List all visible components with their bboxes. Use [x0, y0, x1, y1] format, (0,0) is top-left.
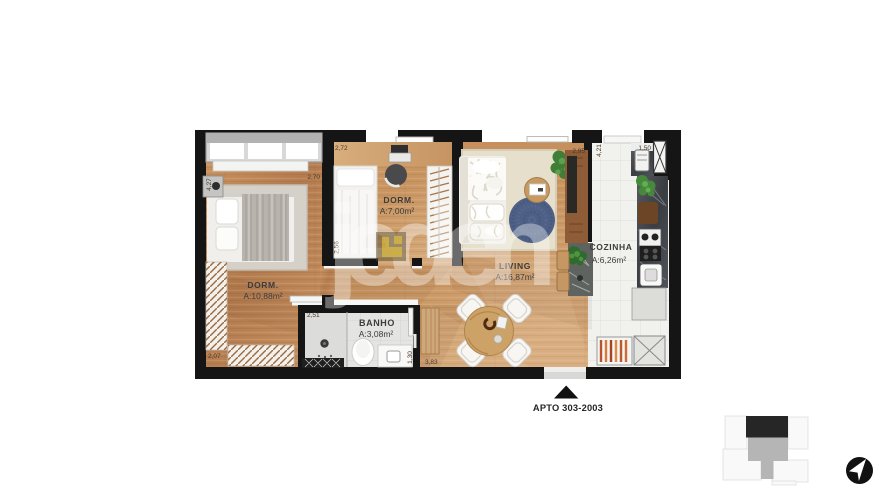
- svg-text:A:6,26m²: A:6,26m²: [592, 255, 627, 265]
- svg-text:4,21: 4,21: [596, 144, 603, 157]
- svg-text:1,30: 1,30: [407, 351, 414, 364]
- svg-text:jeden: jeden: [325, 183, 550, 310]
- svg-text:2,07: 2,07: [208, 353, 221, 360]
- svg-text:BANHO: BANHO: [359, 318, 395, 328]
- svg-text:COZINHA: COZINHA: [590, 242, 633, 252]
- svg-text:A:10,88m²: A:10,88m²: [243, 291, 282, 301]
- svg-text:2,70: 2,70: [307, 174, 320, 181]
- svg-text:A:3,08m²: A:3,08m²: [359, 329, 394, 339]
- svg-text:3,83: 3,83: [425, 359, 438, 366]
- svg-text:2,72: 2,72: [335, 145, 348, 152]
- svg-text:2,95: 2,95: [572, 148, 585, 155]
- svg-text:DORM.: DORM.: [247, 280, 278, 290]
- svg-text:1,50: 1,50: [638, 145, 651, 152]
- svg-text:2,51: 2,51: [307, 312, 320, 319]
- svg-text:APTO 303-2003: APTO 303-2003: [533, 403, 603, 413]
- svg-text:4,27: 4,27: [206, 178, 213, 191]
